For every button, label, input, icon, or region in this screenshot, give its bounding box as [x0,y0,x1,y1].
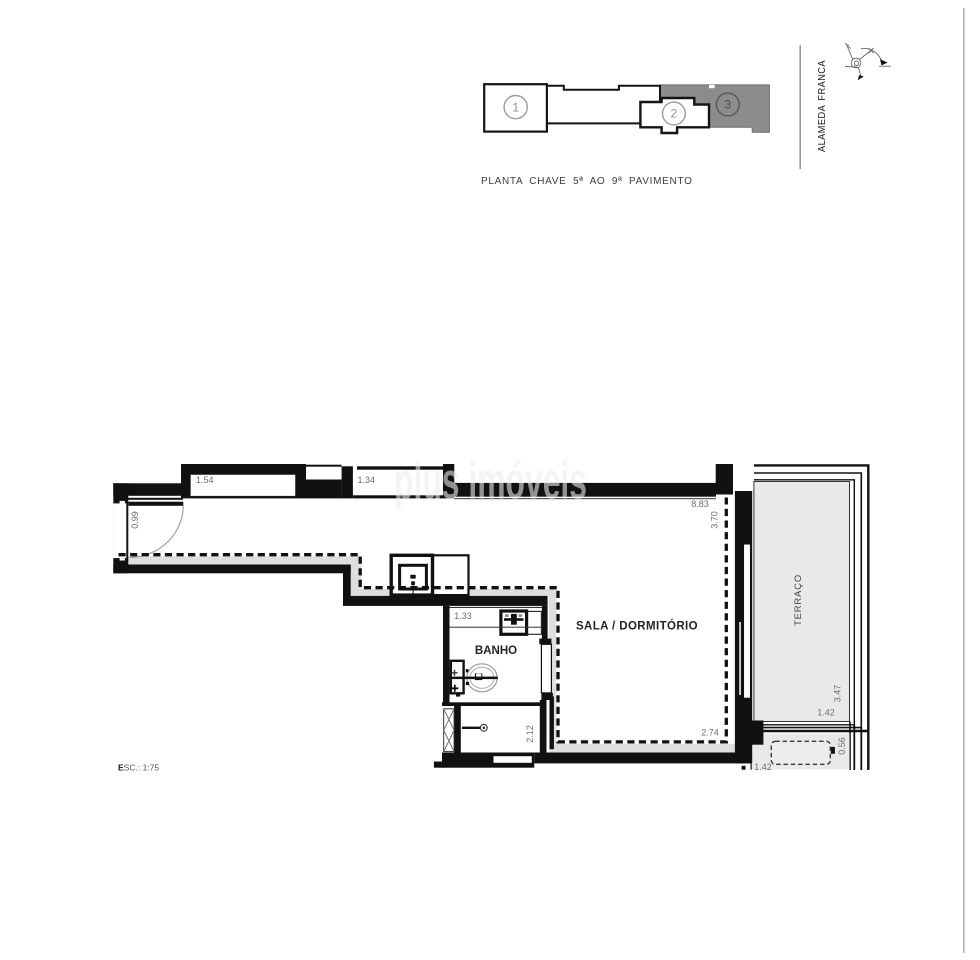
svg-text:2: 2 [671,107,678,121]
svg-text:plus imóveis: plus imóveis [394,453,587,511]
svg-text:2.74: 2.74 [701,728,719,738]
svg-text:TERRAÇO: TERRAÇO [793,574,804,626]
svg-text:2.12: 2.12 [525,725,535,743]
svg-text:SALA / DORMITÓRIO: SALA / DORMITÓRIO [576,620,698,633]
svg-text:1.33: 1.33 [454,611,472,621]
svg-text:8.83: 8.83 [691,499,709,509]
svg-text:1: 1 [512,100,519,114]
svg-text:BANHO: BANHO [475,645,517,657]
svg-text:1.42: 1.42 [754,762,772,772]
svg-text:3.70: 3.70 [710,511,720,529]
svg-text:0.56: 0.56 [837,737,847,755]
svg-text:PLANTA CHAVE 5ª AO 9ª PAVIMENT: PLANTA CHAVE 5ª AO 9ª PAVIMENTO [481,176,693,187]
svg-text:ALAMEDA FRANCA: ALAMEDA FRANCA [816,60,828,152]
svg-text:3.47: 3.47 [833,685,843,703]
svg-text:1.34: 1.34 [358,475,376,485]
svg-text:3: 3 [724,98,731,112]
svg-text:ESC.: 1:75: ESC.: 1:75 [118,763,159,773]
svg-text:1.54: 1.54 [196,475,214,485]
svg-text:0.99: 0.99 [130,511,140,529]
svg-text:1.42: 1.42 [817,708,835,718]
